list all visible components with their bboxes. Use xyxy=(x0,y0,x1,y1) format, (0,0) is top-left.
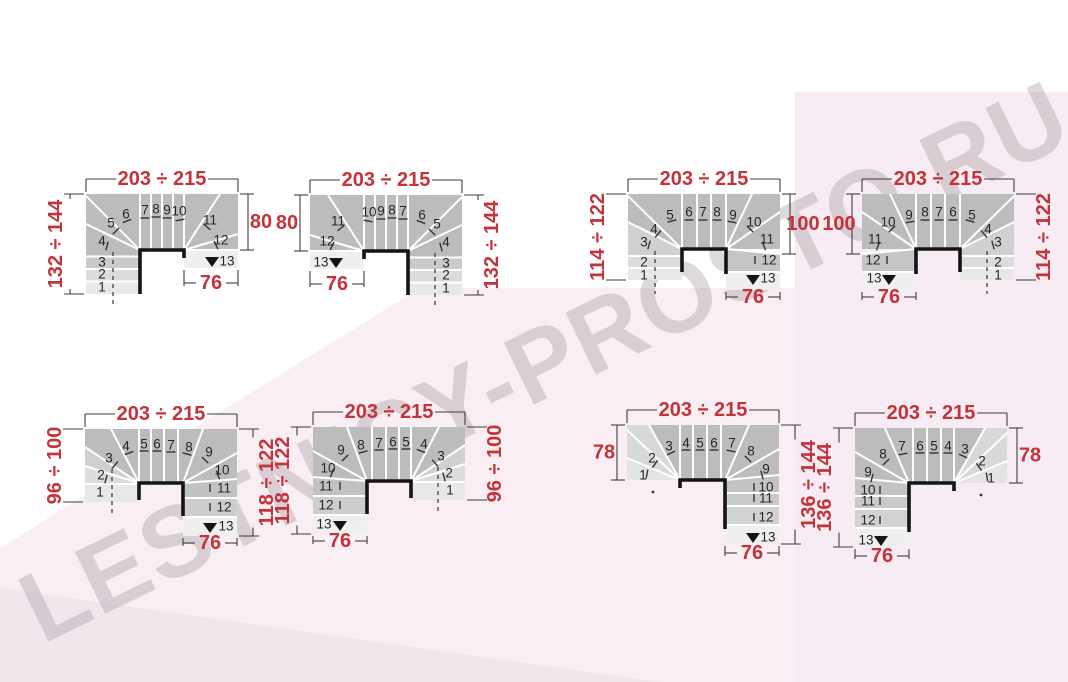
step-number: 5 xyxy=(968,208,976,223)
dim-left-label: 78 xyxy=(593,442,615,464)
step-number: 5 xyxy=(140,437,148,452)
step-number: 6 xyxy=(153,437,161,452)
step-number: 4 xyxy=(984,222,992,237)
dim-right-label: 132 ÷ 144 xyxy=(481,200,503,290)
step-number: 6 xyxy=(710,436,718,451)
step-number: 9 xyxy=(864,465,872,480)
step-number: 7 xyxy=(375,436,383,451)
step-number: 7 xyxy=(699,205,707,220)
dim-top-label: 203 ÷ 215 xyxy=(345,401,434,423)
step-number: 11 xyxy=(319,479,333,494)
step-number: 1 xyxy=(994,268,1002,283)
step-number: 2 xyxy=(640,255,648,270)
step-number: 1 xyxy=(987,471,995,486)
step-number: 12 xyxy=(216,500,231,515)
step-number: 9 xyxy=(205,445,213,460)
step-number: 11 xyxy=(759,491,773,506)
dim-top-label: 203 ÷ 215 xyxy=(894,168,983,190)
step-number: 6 xyxy=(389,435,397,450)
step-number: 4 xyxy=(420,437,428,452)
step-number: 4 xyxy=(944,439,952,454)
step-number: 7 xyxy=(898,439,906,454)
step-number: 5 xyxy=(402,435,410,450)
stairwell-wall-line xyxy=(682,249,726,274)
step-number: 7 xyxy=(935,205,943,220)
step-number: 5 xyxy=(696,436,704,451)
step-number: 12 xyxy=(865,253,880,268)
step-number: 13 xyxy=(219,254,234,269)
step-number: 11 xyxy=(861,494,875,509)
step-number: 9 xyxy=(905,208,913,223)
step-number: 8 xyxy=(152,202,160,217)
step-number: 12 xyxy=(213,233,228,248)
stairwell-wall-line xyxy=(367,481,411,514)
step-number: 5 xyxy=(433,217,441,232)
step-number: 6 xyxy=(949,205,957,220)
dim-bottom-label: 76 xyxy=(741,542,763,564)
dim-left-label: 132 ÷ 144 xyxy=(45,199,67,289)
step-number: 4 xyxy=(650,222,658,237)
dim-bottom-label: 76 xyxy=(200,272,222,294)
step-number: 1 xyxy=(640,268,648,283)
step-number: 3 xyxy=(105,451,113,466)
step-number: 10 xyxy=(746,215,761,230)
step-number: 8 xyxy=(747,444,755,459)
stairwell-wall-line xyxy=(909,483,954,532)
stair-plan-d2: 12345678910111213203 ÷ 2157680132 ÷ 144 xyxy=(250,153,520,368)
stairwell-wall-line xyxy=(139,483,183,516)
step-number: 8 xyxy=(357,438,365,453)
walking-line-dot xyxy=(980,494,983,497)
step-number: 9 xyxy=(762,462,770,477)
step-number: 12 xyxy=(761,253,776,268)
stairwell-wall-line xyxy=(680,480,725,529)
step-number: 5 xyxy=(107,216,115,231)
step-number: 6 xyxy=(916,439,924,454)
step-number: 1 xyxy=(96,485,104,500)
step-number: 7 xyxy=(141,203,149,218)
step-number: 11 xyxy=(760,232,774,247)
step-number: 5 xyxy=(666,208,674,223)
step-number: 3 xyxy=(640,235,648,250)
step-number: 3 xyxy=(665,439,673,454)
step-number: 4 xyxy=(98,234,106,249)
step-number: 4 xyxy=(122,439,130,454)
step-number: 6 xyxy=(685,205,693,220)
step-number: 9 xyxy=(377,204,385,219)
step-number: 8 xyxy=(185,440,193,455)
stair-plan-d3: 12345678910111213203 ÷ 21576114 ÷ 122100 xyxy=(568,152,838,367)
dim-right-label: 78 xyxy=(1019,445,1041,467)
dim-bottom-label: 76 xyxy=(329,530,351,552)
step-number: 3 xyxy=(98,255,106,270)
dim-top-label: 203 ÷ 215 xyxy=(117,403,206,425)
step-number: 12 xyxy=(319,234,334,249)
dim-top-label: 203 ÷ 215 xyxy=(660,168,749,190)
step-number: 2 xyxy=(648,451,656,466)
step-number: 8 xyxy=(879,447,887,462)
stairwell-wall-line xyxy=(140,250,184,294)
step-number: 3 xyxy=(442,256,450,271)
step-number: 3 xyxy=(961,442,969,457)
dim-right-label: 96 ÷ 100 xyxy=(484,425,506,503)
step-number: 8 xyxy=(713,205,721,220)
step-number: 2 xyxy=(978,454,986,469)
stair-plan-d8: 12345678910111213203 ÷ 21576136 ÷ 14478 xyxy=(795,386,1065,601)
step-number: 11 xyxy=(203,213,217,228)
dim-left-label: 118 ÷ 122 xyxy=(272,437,294,525)
step-number: 3 xyxy=(994,235,1002,250)
step-number: 11 xyxy=(868,232,882,247)
stairwell-wall-line xyxy=(364,251,408,295)
dim-left-label: 100 xyxy=(822,213,855,235)
step-number: 6 xyxy=(122,207,130,222)
dim-bottom-label: 76 xyxy=(878,286,900,308)
step-number: 10 xyxy=(320,461,335,476)
dim-top-label: 203 ÷ 215 xyxy=(342,169,431,191)
step-number: 1 xyxy=(446,483,454,498)
step-number: 11 xyxy=(217,481,231,496)
step-number: 10 xyxy=(214,463,229,478)
step-number: 2 xyxy=(994,255,1002,270)
step-number: 13 xyxy=(866,271,881,286)
step-number: 3 xyxy=(437,449,445,464)
step-number: 7 xyxy=(728,436,736,451)
step-number: 9 xyxy=(729,208,737,223)
step-number: 4 xyxy=(682,436,690,451)
step-number: 2 xyxy=(97,468,105,483)
dim-bottom-label: 76 xyxy=(326,273,348,295)
dim-left-label: 96 ÷ 100 xyxy=(44,427,66,505)
step-number: 11 xyxy=(331,214,345,229)
step-number: 13 xyxy=(760,271,775,286)
stair-plan-d4: 12345678910111213203 ÷ 21576100114 ÷ 122 xyxy=(802,152,1068,367)
step-number: 7 xyxy=(167,438,175,453)
step-number: 12 xyxy=(758,510,773,525)
step-number: 12 xyxy=(860,513,875,528)
step-number: 13 xyxy=(313,255,328,270)
dim-bottom-label: 76 xyxy=(871,545,893,567)
dim-left-label: 80 xyxy=(276,212,298,234)
step-number: 10 xyxy=(880,215,895,230)
dim-bottom-label: 76 xyxy=(199,532,221,554)
dim-top-label: 203 ÷ 215 xyxy=(887,402,976,424)
walking-line-dot xyxy=(652,491,655,494)
dim-left-label: 136 ÷ 144 xyxy=(814,442,836,532)
dim-top-label: 203 ÷ 215 xyxy=(659,399,748,421)
stairwell-wall-line xyxy=(916,249,960,274)
step-number: 12 xyxy=(318,498,333,513)
step-number: 1 xyxy=(442,281,450,296)
step-number: 7 xyxy=(399,204,407,219)
step-number: 5 xyxy=(930,439,938,454)
step-number: 10 xyxy=(361,205,376,220)
step-number: 1 xyxy=(98,280,106,295)
step-number: 9 xyxy=(337,443,345,458)
dim-top-label: 203 ÷ 215 xyxy=(118,168,207,190)
step-number: 9 xyxy=(163,203,171,218)
step-number: 6 xyxy=(418,208,426,223)
stair-plan-d6: 12345678910111213203 ÷ 21576118 ÷ 12296 … xyxy=(253,385,523,600)
stage: LESTNICY-PROSTO.RU 12345678910111213203 … xyxy=(0,0,1068,682)
step-number: 1 xyxy=(639,468,647,483)
step-number: 8 xyxy=(388,203,396,218)
step-number: 2 xyxy=(445,466,453,481)
dim-bottom-label: 76 xyxy=(742,286,764,308)
step-number: 10 xyxy=(171,204,186,219)
step-number: 8 xyxy=(921,205,929,220)
dim-right-label: 114 ÷ 122 xyxy=(1033,193,1055,281)
dim-left-label: 114 ÷ 122 xyxy=(587,193,609,281)
step-number: 4 xyxy=(442,235,450,250)
